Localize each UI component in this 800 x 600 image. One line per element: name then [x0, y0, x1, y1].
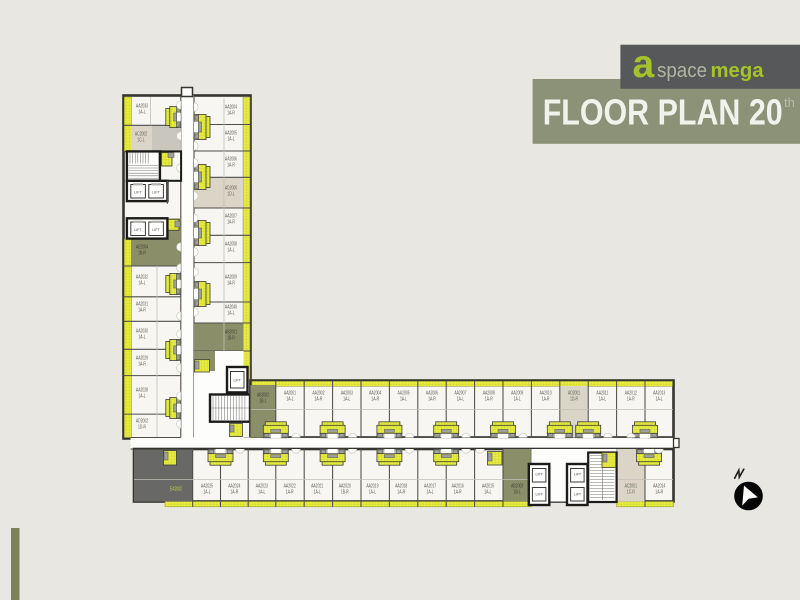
svg-text:1A-L: 1A-L [514, 396, 522, 402]
svg-text:LIFT: LIFT [574, 493, 582, 497]
svg-text:1A-L: 1A-L [656, 396, 664, 402]
svg-text:1A-L: 1A-L [258, 489, 266, 495]
svg-text:1A-L: 1A-L [457, 396, 465, 402]
svg-text:1A-R: 1A-R [227, 280, 235, 286]
svg-text:1A-L: 1A-L [227, 136, 235, 142]
svg-text:1A-R: 1A-R [286, 489, 294, 495]
svg-text:LIFT: LIFT [536, 493, 544, 497]
svg-text:LIFT: LIFT [152, 228, 160, 232]
svg-text:LIFT: LIFT [152, 191, 160, 195]
svg-text:1B-L: 1B-L [259, 398, 267, 404]
svg-text:1C-L: 1C-L [137, 137, 145, 143]
svg-text:1A-L: 1A-L [314, 489, 322, 495]
svg-text:1A-L: 1A-L [138, 280, 146, 286]
svg-text:LIFT: LIFT [134, 228, 142, 232]
svg-text:1A-L: 1A-L [227, 247, 235, 253]
svg-text:1A-R: 1A-R [314, 396, 322, 402]
svg-text:th: th [784, 95, 795, 110]
svg-text:mega: mega [711, 60, 765, 82]
svg-text:1B-R: 1B-R [138, 250, 146, 256]
svg-text:1D-R: 1D-R [138, 424, 146, 430]
svg-text:1A-L: 1A-L [484, 489, 492, 495]
svg-text:1A-L: 1A-L [426, 489, 434, 495]
svg-text:FLOOR PLAN 20: FLOOR PLAN 20 [543, 92, 783, 133]
svg-text:LIFT: LIFT [234, 379, 242, 383]
svg-text:1B-L: 1B-L [514, 489, 522, 495]
svg-text:1A-L: 1A-L [400, 396, 408, 402]
svg-text:1A-R: 1A-R [454, 489, 462, 495]
svg-text:LIFT: LIFT [536, 473, 544, 477]
svg-text:1A-R: 1A-R [397, 489, 405, 495]
svg-text:1A-R: 1A-R [138, 307, 146, 313]
svg-text:space: space [657, 60, 707, 82]
svg-text:1A-R: 1A-R [485, 396, 493, 402]
svg-text:1B-R: 1B-R [341, 489, 349, 495]
svg-text:1A-L: 1A-L [138, 393, 146, 399]
svg-text:1A-L: 1A-L [343, 396, 351, 402]
svg-text:1A-L: 1A-L [203, 489, 211, 495]
svg-text:1A-L: 1A-L [286, 396, 294, 402]
svg-text:1A-R: 1A-R [371, 396, 379, 402]
svg-text:1A-R: 1A-R [227, 162, 235, 168]
svg-text:LIFT: LIFT [574, 473, 582, 477]
svg-text:1A-R: 1A-R [138, 361, 146, 367]
svg-text:LIFT: LIFT [134, 191, 142, 195]
svg-text:1A-L: 1A-L [138, 109, 146, 115]
svg-text:1C-R: 1C-R [627, 489, 635, 495]
svg-text:1A-R: 1A-R [428, 396, 436, 402]
svg-text:1A-L: 1A-L [227, 310, 235, 316]
svg-text:1A-R: 1A-R [230, 489, 238, 495]
svg-text:1A-L: 1A-L [138, 334, 146, 340]
svg-text:1A-R: 1A-R [627, 396, 635, 402]
svg-text:1A-R: 1A-R [227, 110, 235, 116]
svg-text:1A-L: 1A-L [369, 489, 377, 495]
svg-text:1A-R: 1A-R [542, 396, 550, 402]
svg-text:1D-L: 1D-L [227, 191, 235, 197]
svg-text:a: a [633, 43, 655, 86]
svg-text:EA2002: EA2002 [170, 486, 183, 492]
svg-text:1B-R: 1B-R [227, 335, 235, 341]
svg-text:1D-R: 1D-R [570, 396, 578, 402]
svg-text:1A-R: 1A-R [655, 489, 663, 495]
svg-text:1A-R: 1A-R [227, 219, 235, 225]
svg-text:1A-L: 1A-L [599, 396, 607, 402]
